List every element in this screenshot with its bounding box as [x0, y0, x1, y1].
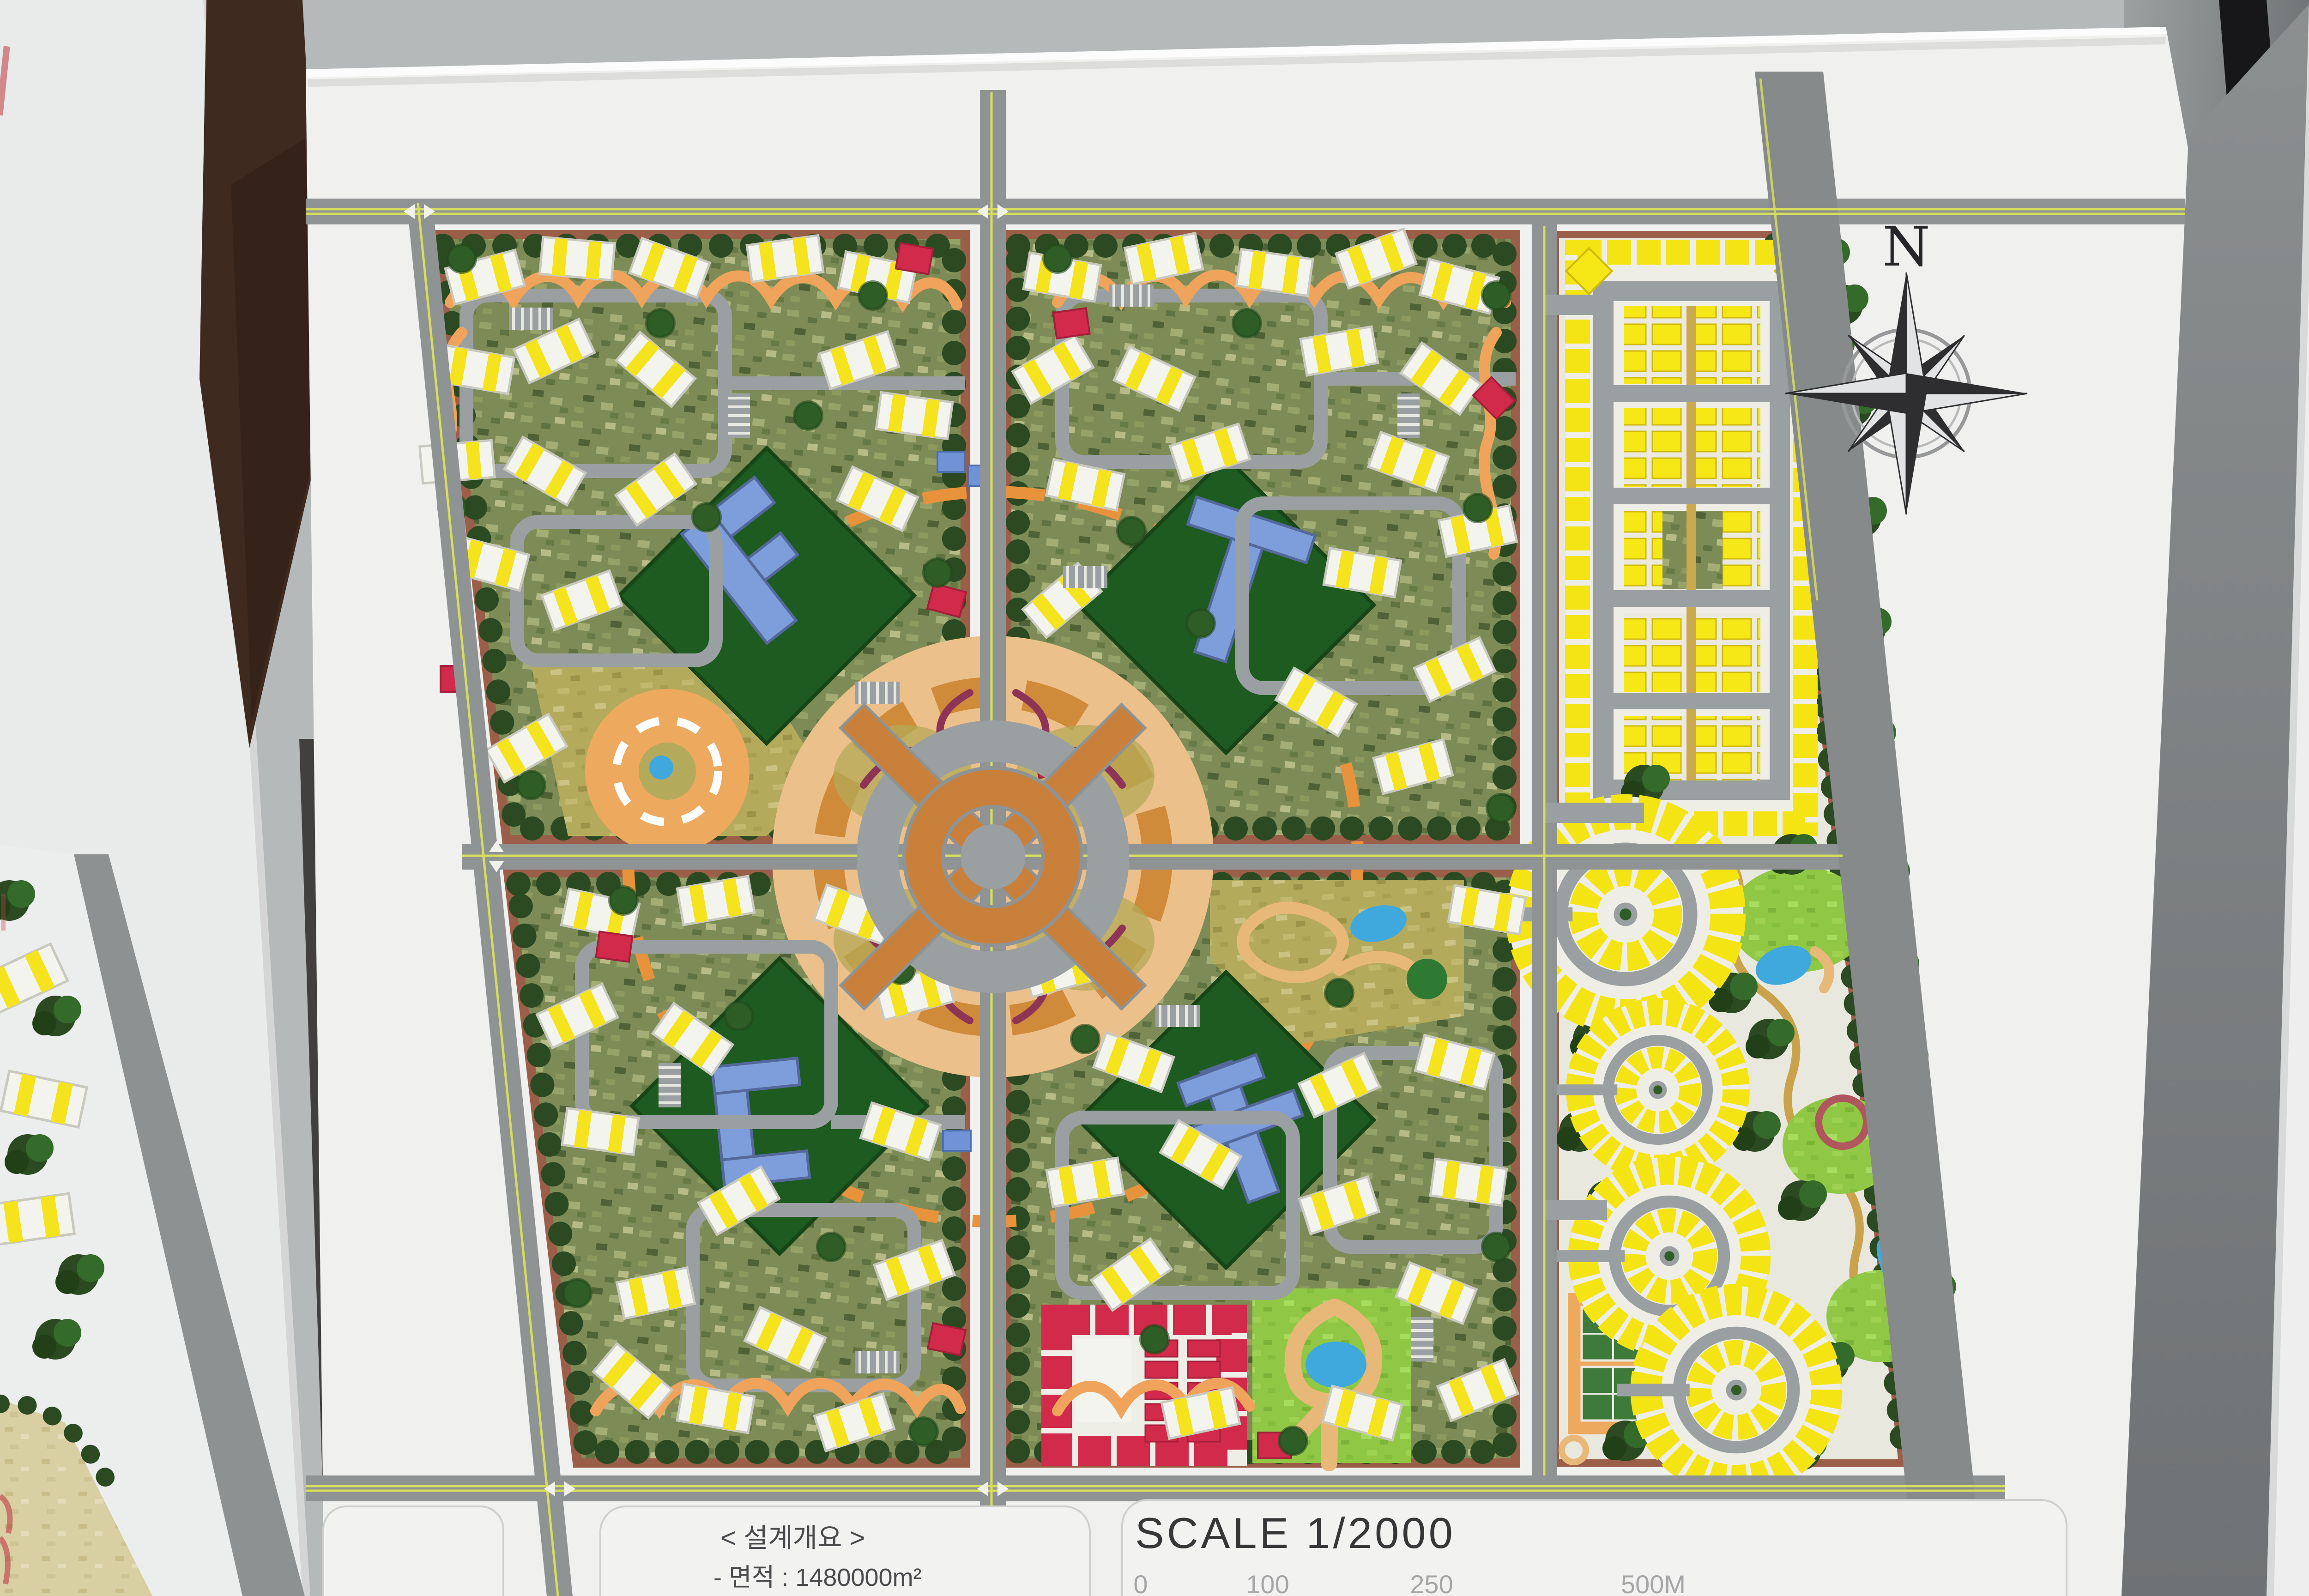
tree-icon	[1487, 794, 1515, 822]
tree-icon	[1482, 1233, 1510, 1261]
tree-icon	[817, 1233, 845, 1261]
tree-icon	[1233, 309, 1261, 337]
red-building	[928, 1323, 966, 1355]
compound-unit-blocks	[1603, 306, 1780, 780]
parking-lot	[855, 1351, 900, 1373]
tree-icon	[647, 309, 674, 337]
photo-architectural-model-board: N SCALE 1/2000 0 100 250 500M < 설계개요 > -…	[0, 0, 2309, 1596]
tree-icon	[1118, 517, 1145, 545]
parking-lot	[509, 308, 553, 330]
tree-icon	[563, 1279, 591, 1307]
red-building	[896, 243, 933, 274]
parking-lot	[1397, 393, 1420, 438]
tree-icon	[924, 559, 951, 586]
scale-tick-100: 100	[1246, 1570, 1289, 1596]
blue-utility-building	[937, 452, 965, 472]
track-pond	[649, 756, 673, 780]
tree-icon	[1141, 1325, 1168, 1353]
red-row-unit	[1188, 1340, 1220, 1357]
parking-lot	[1411, 1317, 1433, 1361]
tree-icon	[725, 1002, 753, 1030]
tree-icon	[1187, 610, 1215, 637]
tree-icon	[1482, 282, 1510, 309]
parking-lot	[659, 1063, 681, 1107]
parking-lot	[855, 682, 900, 704]
tree-icon	[517, 771, 545, 799]
lawn-pond	[1306, 1342, 1366, 1388]
tree-icon	[1044, 245, 1071, 272]
tree-icon	[1279, 1427, 1307, 1455]
parking-lot	[1063, 566, 1107, 588]
red-row-unit	[1188, 1361, 1220, 1378]
scale-tick-250: 250	[1410, 1570, 1453, 1596]
tree-icon	[1464, 494, 1492, 522]
design-overview-area: - 면적 : 1480000m²	[713, 1564, 922, 1591]
blue-utility-building	[943, 1130, 971, 1151]
red-building	[596, 931, 632, 961]
tree-icon	[794, 402, 822, 429]
parking-lot	[1155, 1005, 1200, 1027]
parking-lot	[728, 393, 750, 438]
scale-tick-500m: 500M	[1621, 1570, 1686, 1596]
red-building	[1053, 308, 1089, 338]
scale-title: SCALE 1/2000	[1135, 1509, 1456, 1557]
tree-icon	[1071, 1025, 1099, 1053]
central-roundabout	[840, 704, 1145, 1009]
tree-icon	[448, 245, 476, 272]
design-overview-title: < 설계개요 >	[720, 1523, 865, 1553]
tree-icon	[1325, 979, 1353, 1007]
tree-icon	[910, 1418, 937, 1445]
tree-icon	[693, 503, 720, 531]
red-row-unit	[1145, 1361, 1178, 1378]
tree-icon	[610, 887, 637, 914]
parking-lot	[1109, 284, 1154, 307]
residential-building	[540, 237, 615, 280]
scale-tick-0: 0	[1133, 1570, 1148, 1596]
tree-icon	[859, 282, 887, 309]
compass-north-label: N	[1882, 215, 1930, 278]
